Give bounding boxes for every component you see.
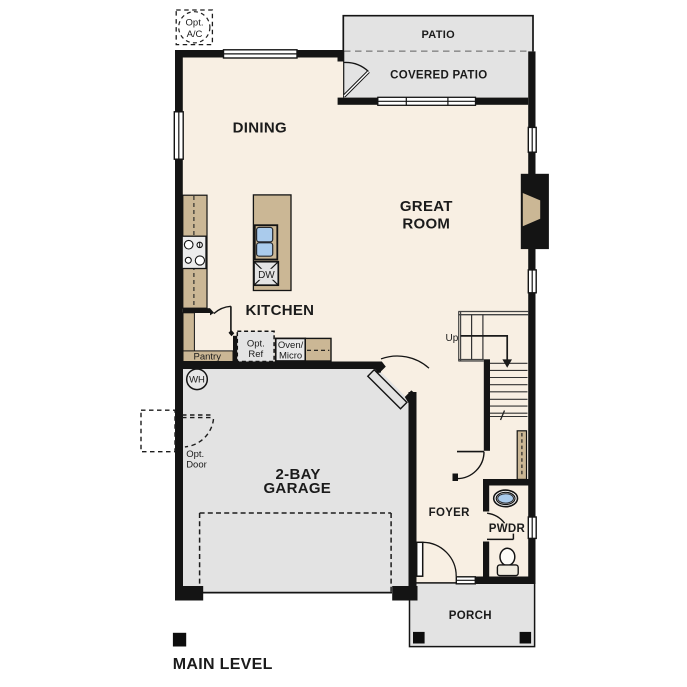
svg-text:Oven/: Oven/ (278, 340, 304, 351)
svg-text:Up: Up (446, 333, 459, 344)
svg-text:COVERED PATIO: COVERED PATIO (390, 70, 487, 82)
svg-text:A/C: A/C (187, 29, 203, 40)
svg-text:GREAT: GREAT (400, 198, 453, 215)
svg-text:Opt.: Opt. (247, 338, 265, 349)
svg-text:PORCH: PORCH (449, 610, 492, 622)
svg-text:Micro: Micro (279, 350, 302, 361)
svg-text:KITCHEN: KITCHEN (246, 302, 315, 319)
svg-text:DW: DW (258, 270, 275, 281)
svg-text:Opt.: Opt. (186, 449, 204, 460)
svg-text:PATIO: PATIO (421, 29, 455, 41)
svg-text:Door: Door (186, 460, 207, 471)
svg-text:MAIN LEVEL: MAIN LEVEL (173, 656, 273, 673)
svg-text:Ref: Ref (248, 349, 263, 360)
svg-text:Pantry: Pantry (194, 352, 222, 363)
svg-text:ROOM: ROOM (402, 216, 450, 233)
svg-text:WH: WH (189, 375, 205, 386)
svg-text:Opt.: Opt. (186, 18, 204, 29)
svg-text:DINING: DINING (233, 119, 287, 136)
svg-text:GARAGE: GARAGE (263, 480, 331, 497)
svg-text:PWDR: PWDR (489, 523, 526, 535)
svg-text:FOYER: FOYER (429, 507, 471, 519)
